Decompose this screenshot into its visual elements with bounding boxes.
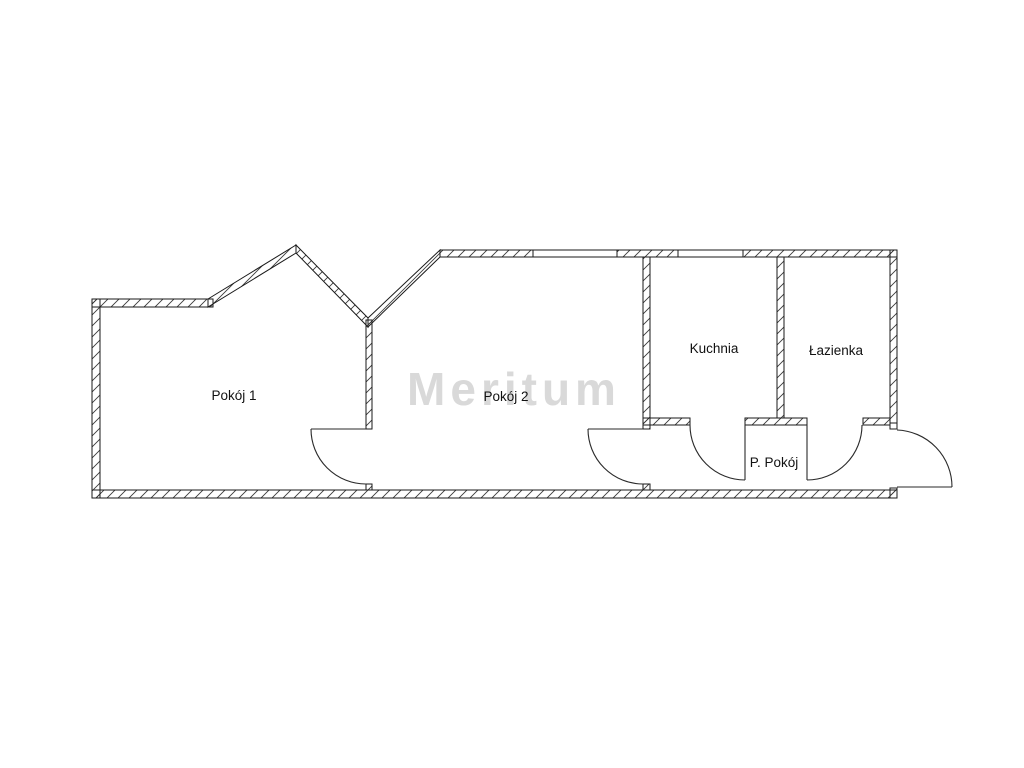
door-arc-lazienka	[807, 425, 862, 480]
room-label-kuchnia: Kuchnia	[690, 341, 739, 356]
entry-door-jamb	[890, 423, 897, 429]
wall-divider-pokoj1-pokoj2	[366, 320, 372, 429]
door-pokoj2	[588, 429, 643, 484]
wall-hall-top-segment-2	[745, 418, 807, 425]
door-kuchnia	[690, 425, 745, 480]
door-lazienka	[807, 425, 862, 480]
wall-top-left	[92, 299, 213, 307]
wall-diagonal-down	[296, 245, 368, 327]
wall-top-segment-2	[617, 250, 678, 257]
floor-plan-canvas: Meritum	[0, 0, 1024, 768]
door-pokoj1	[311, 429, 366, 484]
wall-top-segment-1	[440, 250, 533, 257]
wall-diagonal-up-left	[208, 245, 296, 307]
wall-divider-kuchnia-lazienka	[777, 257, 784, 418]
wall-left	[92, 299, 100, 498]
window-pokoj2	[533, 250, 617, 257]
room-label-lazienka: Łazienka	[809, 343, 864, 358]
door-arc-kuchnia	[690, 425, 745, 480]
wall-divider-pokoj2-kuchnia	[643, 257, 650, 429]
room-label-p-pokoj: P. Pokój	[750, 455, 799, 470]
floor-plan-drawing: Meritum	[0, 0, 1024, 768]
door-entry	[897, 430, 952, 487]
door-arc-pokoj1	[311, 429, 366, 484]
wall-hall-top-segment-1	[643, 418, 690, 425]
wall-hall-top-segment-3	[863, 418, 890, 425]
room-label-pokoj-2: Pokój 2	[483, 389, 528, 404]
wall-top-segment-3	[743, 250, 897, 257]
door-arc-pokoj2	[588, 429, 643, 484]
window-kuchnia	[678, 250, 743, 257]
wall-bottom	[92, 490, 897, 498]
wall-diagonal-up-right	[368, 250, 440, 327]
door-arc-entry	[897, 430, 952, 487]
wall-divider-pokoj1-stub	[366, 484, 372, 490]
wall-right-upper	[890, 250, 897, 428]
wall-divider-pokoj2-stub	[643, 484, 650, 490]
room-label-pokoj-1: Pokój 1	[211, 388, 256, 403]
doors	[311, 425, 952, 487]
